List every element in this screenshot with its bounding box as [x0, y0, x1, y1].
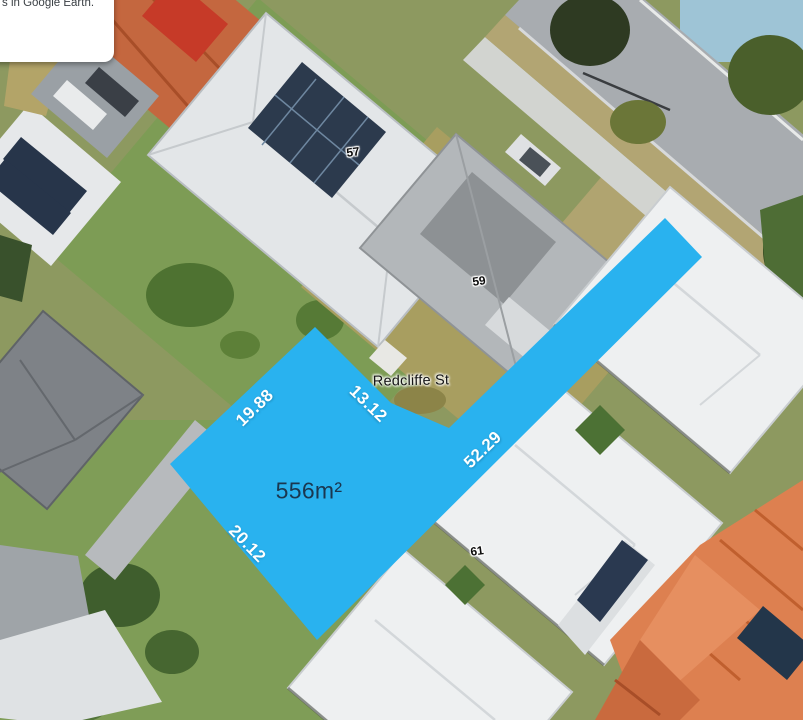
house-number-61: 61: [469, 543, 484, 559]
map-viewport[interactable]: 19.88 13.12 52.29 20.12 556m² Redcliffe …: [0, 0, 803, 720]
google-earth-tooltip: s in Google Earth.: [0, 0, 114, 62]
tooltip-text: s in Google Earth.: [2, 0, 94, 9]
house-number-59: 59: [471, 273, 486, 289]
aerial-imagery: [0, 0, 803, 720]
street-label: Redcliffe St: [373, 372, 450, 389]
parcel-area-label: 556m²: [276, 478, 343, 505]
house-number-57: 57: [345, 144, 360, 160]
